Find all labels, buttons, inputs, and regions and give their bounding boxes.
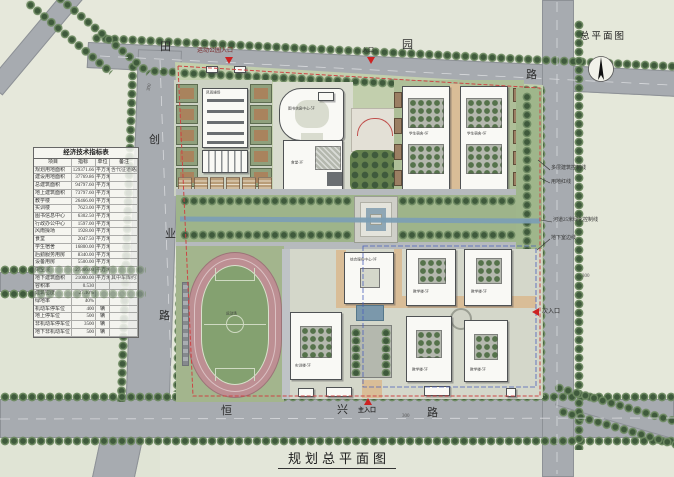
dorm-a-courtyard [408,98,444,128]
road-name-chuangye-3: 路 [159,311,170,322]
table-cell: 规划用地面积 [34,167,72,175]
plaza-grove [350,150,396,192]
secondary-entrance-label: 次入口 [542,309,560,315]
drawing-title: 规划总平面图 [278,448,396,469]
table-cell: 辆 [96,306,110,314]
table-cell [96,298,110,306]
canteen-label: 食堂-3F [291,161,303,165]
penalty-box-north [215,268,255,281]
dorm-center-path [450,84,460,192]
table-cell: 平方米 [96,198,110,206]
table-cell: 建设用地面积 [34,174,72,182]
table-cell: 地下非机动车位 [34,329,72,337]
tree-column [351,328,361,376]
indicator-table-grid: 项目指标单位备注规划用地面积129371.66平方米含代征道路用地建设用地面积3… [34,159,138,337]
teaching-3-courtyard [416,330,442,358]
site-plan-canvas: 经济技术指标表 项目指标单位备注规划用地面积129371.66平方米含代征道路用… [0,0,674,477]
table-cell: 地上停车位 [34,313,72,321]
road-name-chuangye-1: 创 [149,135,160,146]
table-row: 后勤服务用房8340.00平方米 [34,252,138,260]
table-cell: 8340.00 [72,252,96,260]
basketball-court [176,147,198,166]
canteen-courtyard [315,146,341,170]
training-label: 实训楼-5F [295,364,311,368]
table-cell: 地下建筑面积 [34,275,72,283]
basketball-court [250,126,272,145]
compass-label: 总平面图 [580,33,626,43]
drawing-title-wrap: 规划总平面图 [0,448,674,469]
table-row: 风雨操场1928.00平方米 [34,228,138,236]
teaching-1-courtyard [418,258,446,284]
table-cell: 400 [72,306,96,314]
table-row: 图书信息中心6302.50平方米 [34,213,138,221]
table-row: 地上建筑面积73797.60平方米 [34,190,138,198]
pavilion [394,92,402,108]
north-entrance-label: 入口 [362,48,374,54]
table-row: 教学楼26466.00平方米 [34,198,138,206]
table-cell [110,306,138,314]
table-cell: 21000.00 [72,275,96,283]
table-cell: 其中车库约700位 [110,275,138,283]
teaching-4-courtyard [474,334,498,360]
table-cell: 73797.60 [72,190,96,198]
table-cell: 平方米 [96,190,110,198]
dorm-b-courtyard [466,144,502,174]
table-cell: 40% [72,298,96,306]
gate-house [424,386,450,396]
table-cell: 风雨操场 [34,228,72,236]
road-name-hengxing-3: 路 [427,408,438,419]
table-cell: 平方米 [96,221,110,229]
table-cell: 129371.66 [72,167,96,175]
table-cell: 7623.00 [72,205,96,213]
table-cell: 辆 [96,313,110,321]
table-cell: 500 [72,329,96,337]
basketball-court [250,147,272,166]
tree-row-over-table [0,289,146,299]
tree-row [0,436,674,446]
dorm-a-label: 学生宿舍-6F [409,132,428,136]
table-cell: 非机动车停车位 [34,321,72,329]
table-cell: 图书信息中心 [34,213,72,221]
table-cell: 1597.00 [72,221,96,229]
basketball-court [176,126,198,145]
grandstand [182,282,189,366]
field-center-circle [226,315,244,333]
table-cell: 6302.50 [72,213,96,221]
teaching-3-label: 教学楼-5F [412,368,428,372]
table-header-cell: 项目 [34,159,72,167]
table-cell [110,213,138,221]
indicator-table: 经济技术指标表 项目指标单位备注规划用地面积129371.66平方米含代征道路用… [33,147,139,338]
table-cell [110,329,138,337]
table-row: 机动车停车位400辆 [34,306,138,314]
gym-label: 风雨操场 [206,91,220,95]
table-cell: 平方米 [96,228,110,236]
axis-plaza-stage [370,214,382,225]
table-cell: 平方米 [96,167,110,175]
table-cell [110,228,138,236]
table-cell: 平方米 [96,174,110,182]
table-row: 绿地率40% [34,298,138,306]
basketball-court [176,105,198,124]
table-cell: 26466.00 [72,198,96,206]
colonnade-building [202,150,248,173]
table-cell [110,321,138,329]
dorm-a-courtyard [408,144,444,174]
pavilion [394,144,402,160]
table-cell: 37769.86 [72,174,96,182]
basketball-court [250,84,272,103]
table-row: 行政办公中心1597.00平方米 [34,221,138,229]
red-line-label: 用地红线 [551,180,571,185]
penalty-box-south [215,368,255,381]
table-cell: 500 [72,313,96,321]
table-cell: 平方米 [96,205,110,213]
teaching-1-label: 教学楼-5F [413,290,429,294]
table-cell [110,198,138,206]
table-row: 学生宿舍16800.00平方米 [34,244,138,252]
basketball-court [176,84,198,103]
table-cell [110,174,138,182]
table-cell: 平方米 [96,252,110,260]
table-header-row: 项目指标单位备注 [34,159,138,167]
table-cell: 后勤服务用房 [34,252,72,260]
table-cell: 机动车停车位 [34,306,72,314]
table-cell [110,298,138,306]
table-cell [110,221,138,229]
road-name-tianyuan-1: 田 [160,42,171,53]
table-row: 地上停车位500辆 [34,313,138,321]
table-row: 规划用地面积129371.66平方米含代征道路用地 [34,167,138,175]
dorm-b-courtyard [466,98,502,128]
sport-park-entrance-label: 运动公园入口 [197,48,233,54]
reflecting-pool [356,305,384,321]
table-cell: 16800.00 [72,244,96,252]
gate-house [234,66,246,73]
table-cell: 学生宿舍 [34,244,72,252]
table-row: 非机动车停车位3500辆 [34,321,138,329]
table-cell: 总建筑面积 [34,182,72,190]
table-cell: 平方米 [96,182,110,190]
table-cell: 平方米 [96,244,110,252]
gate-house [298,388,314,397]
main-entrance-label: 主入口 [358,408,376,414]
road-name-tianyuan-2: 园 [402,40,413,51]
library-courtyard [295,100,329,128]
road-name-hengxing-2: 兴 [337,405,348,416]
table-cell [110,252,138,260]
table-cell: 平方米 [96,236,110,244]
table-cell: 食堂 [34,236,72,244]
basketball-court [250,105,272,124]
table-cell: 辆 [96,329,110,337]
training-courtyard [300,326,332,358]
pavilion [394,118,402,134]
table-cell [110,244,138,252]
table-cell: 平方米 [96,213,110,221]
table-row: 总建筑面积94797.60平方米 [34,182,138,190]
tree-row [180,196,352,206]
table-cell: 含代征道路用地 [110,167,138,175]
tree-row-over-table [0,265,146,275]
table-row: 地下非机动车位500辆 [34,329,138,337]
table-cell: 实训楼 [34,205,72,213]
teaching-2-courtyard [476,258,502,284]
table-cell [110,182,138,190]
table-cell: 地上建筑面积 [34,190,72,198]
table-cell: 1928.00 [72,228,96,236]
indicator-table-title: 经济技术指标表 [34,148,138,159]
dimension-label: 300 [402,414,410,419]
gate-house [326,387,352,397]
table-cell [110,205,138,213]
multi-storey-control-line-label: 多层建筑控制线 [551,166,586,171]
table-cell [110,190,138,198]
teaching-4-label: 教学楼-5F [470,368,486,372]
table-header-cell: 备注 [110,159,138,167]
service-center-label: 综合服务中心-9F [350,258,377,262]
table-row: 建设用地面积37769.86平方米 [34,174,138,182]
table-cell [110,236,138,244]
table-cell: 3500 [72,321,96,329]
path [394,249,402,299]
service-center-atrium [360,268,380,288]
table-row: 地下建筑面积21000.00平方米其中车库约700位 [34,275,138,283]
basement-line-label: 地下室边线 [551,236,576,241]
library-label: 图书信息中心-5F [288,107,315,111]
canteen-service-block [327,172,342,186]
pavilion [394,170,402,186]
table-header-cell: 指标 [72,159,96,167]
library-annex [318,92,334,101]
dorm-b-label: 学生宿舍-6F [467,132,486,136]
table-row: 实训楼7623.00平方米 [34,205,138,213]
table-cell: 平方米 [96,275,110,283]
dimension-label: 300 [582,274,590,279]
field-label: 运动场 [226,312,237,316]
path [362,380,382,398]
table-cell: 绿地率 [34,298,72,306]
table-cell: 辆 [96,321,110,329]
inner-road-west [282,249,290,399]
table-cell [110,313,138,321]
teaching-2-label: 教学楼-5F [471,290,487,294]
road-name-hengxing-1: 恒 [221,406,232,417]
table-cell: 教学楼 [34,198,72,206]
road-name-tianyuan-3: 路 [526,70,537,81]
table-row: 食堂2047.50平方米 [34,236,138,244]
table-header-cell: 单位 [96,159,110,167]
tree-column [381,328,391,376]
table-cell: 行政办公中心 [34,221,72,229]
tree-row [180,230,352,240]
river-greenbelt-control-line-label: 河道25米绿化控制线 [553,218,598,223]
table-cell: 94797.60 [72,182,96,190]
road-name-chuangye-2: 业 [165,229,176,240]
table-cell: 2047.50 [72,236,96,244]
guard-hut [506,388,516,397]
tree-column [574,20,584,450]
gate-house [206,66,218,73]
gymnasium-building [202,88,248,148]
